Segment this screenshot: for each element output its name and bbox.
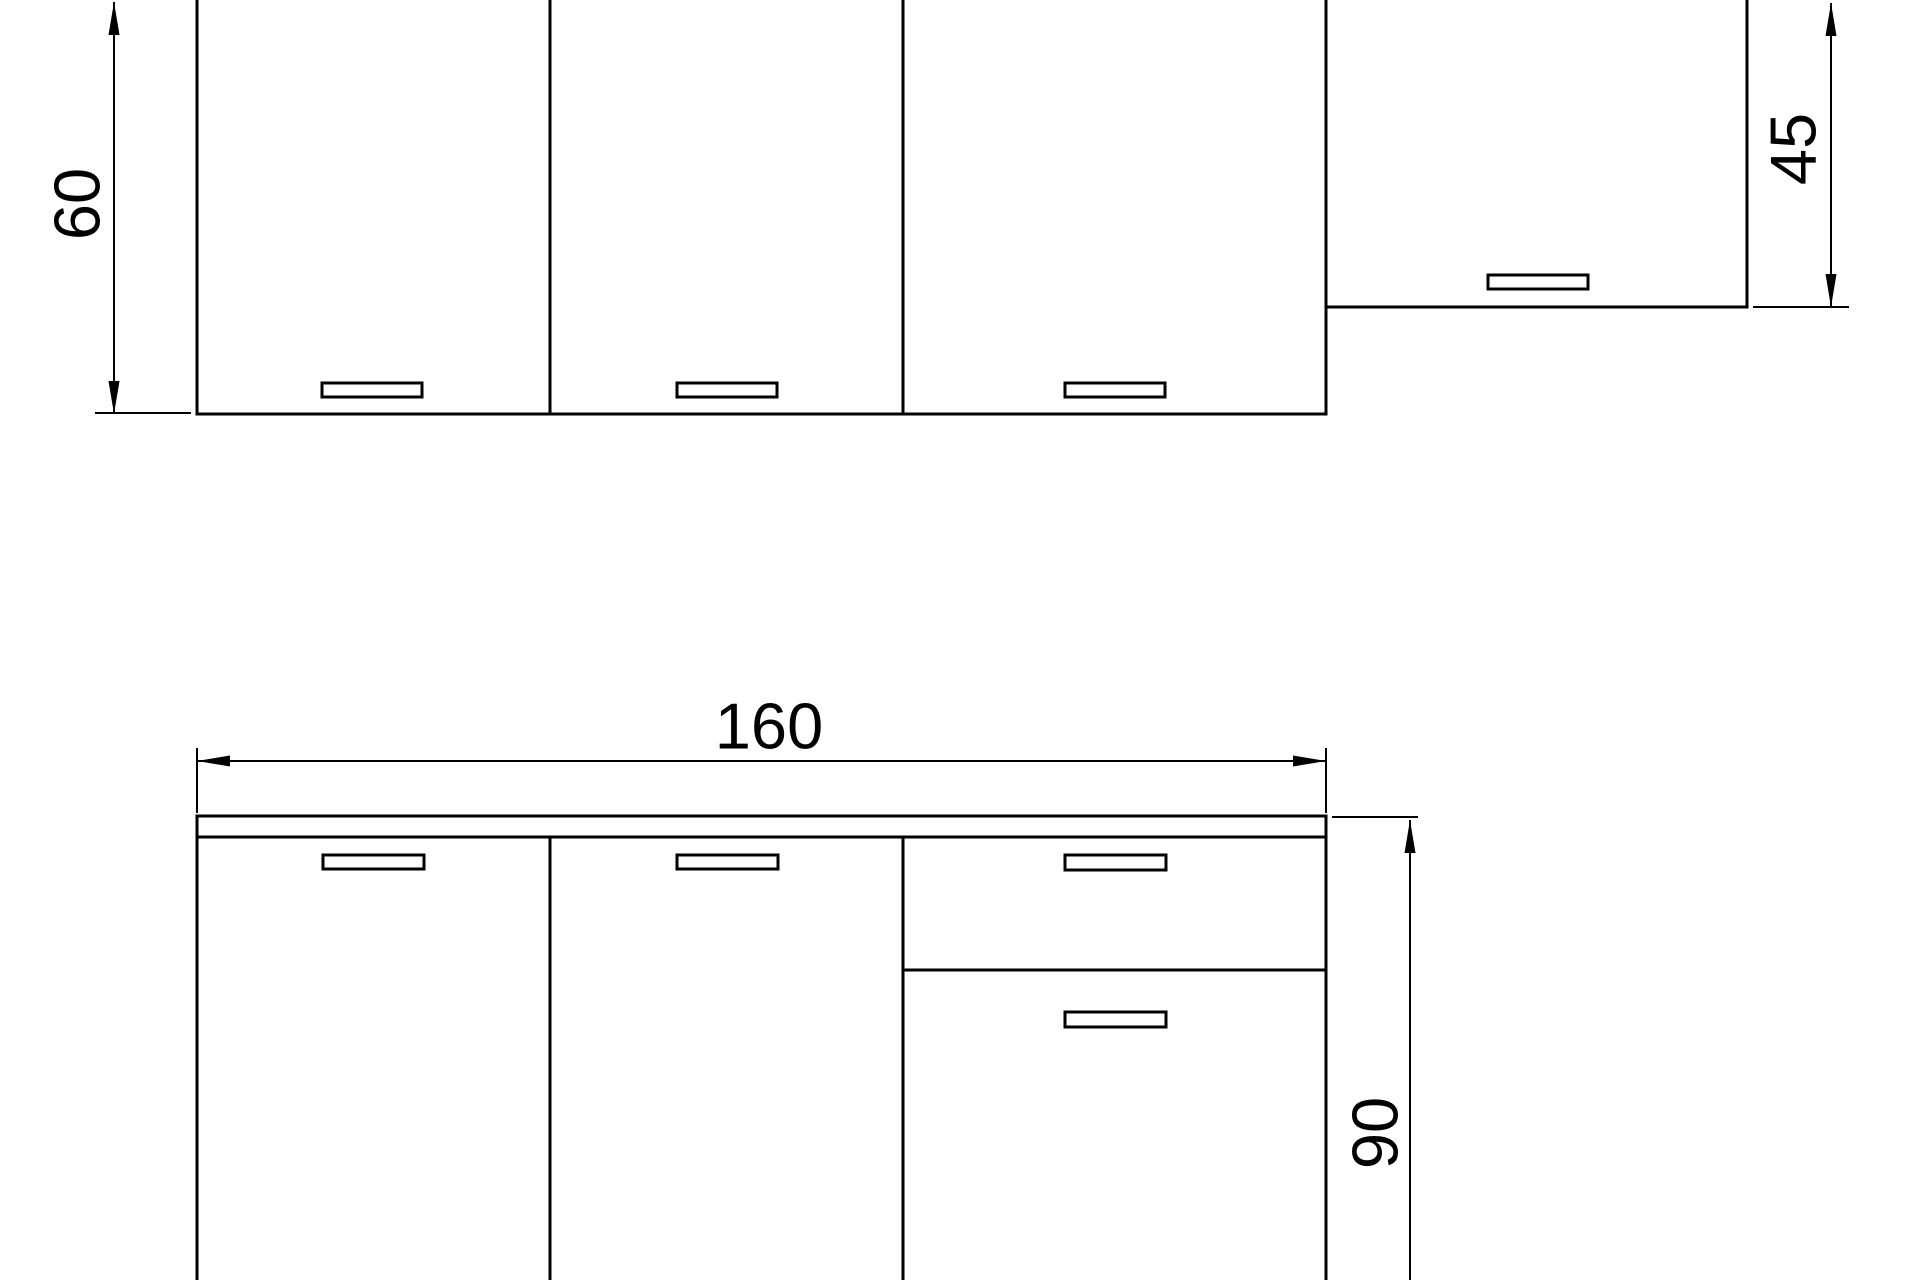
base-door-2-handle [677,855,778,869]
wall-cabinet-2-handle [677,383,777,397]
drawing-stage: 604516090 [0,0,1920,1280]
dim-base-height: 90 [1332,817,1418,1280]
wall-cabinet-2 [550,0,903,414]
dim-base-width-label: 160 [715,690,823,763]
wall-cabinet-1-handle [322,383,422,397]
dim-wall-cabinet-height-arrowhead-0 [109,2,120,35]
dim-wall-cabinet-short-height-arrowhead-1 [1826,274,1837,307]
base-door-1-handle [323,855,424,869]
wall-cabinet-3-handle [1065,383,1165,397]
dim-wall-cabinet-short-height-label: 45 [1757,113,1830,185]
dim-wall-cabinet-height-arrowhead-1 [109,381,120,414]
countertop [197,816,1326,837]
base-door-3-handle [1065,1012,1166,1027]
dim-base-width-arrowhead-0 [197,756,230,767]
wall-cabinet-short-handle [1488,275,1588,289]
dim-wall-cabinet-short-height: 45 [1753,3,1849,307]
wall-cabinet-1 [197,0,550,414]
wall-cabinet-short [1326,0,1747,307]
wall-cabinet-3 [903,0,1326,414]
dim-base-width: 160 [197,690,1326,814]
kitchen-cabinet-technical-drawing: 604516090 [0,0,1920,1280]
base-drawer-handle [1065,855,1166,870]
dim-wall-cabinet-height: 60 [41,2,192,414]
dim-base-height-arrowhead-0 [1405,820,1416,853]
dim-wall-cabinet-height-label: 60 [41,168,114,240]
dim-base-height-label: 90 [1339,1097,1412,1169]
dim-base-width-arrowhead-1 [1293,756,1326,767]
base-cabinet-body [197,837,1326,1280]
dim-wall-cabinet-short-height-arrowhead-0 [1826,3,1837,36]
